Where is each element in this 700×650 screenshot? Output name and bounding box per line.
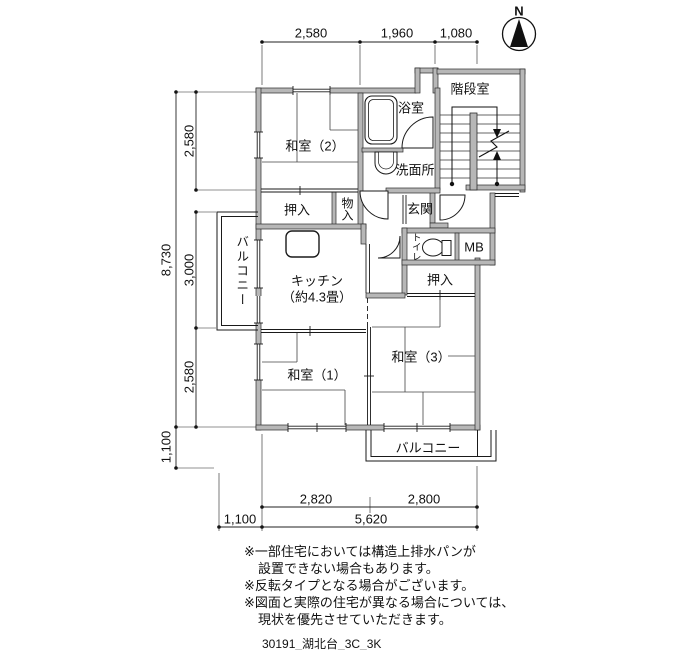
room-label-washitsu2: 和室（2）	[285, 140, 344, 153]
room-label-kitchen: キッチン	[291, 275, 343, 288]
window-washitsu3-bottom	[384, 423, 450, 432]
fusuma-closet-washitsu3	[407, 290, 475, 300]
window-top	[293, 86, 330, 95]
dim-top-2: 1,960	[381, 27, 414, 40]
wall-stair-left	[435, 88, 440, 190]
window-washitsu1-left	[254, 344, 263, 380]
wall-stair-right	[520, 69, 525, 192]
dim-bottom-offset: 1,100	[224, 513, 257, 526]
note-line-4: ※図面と実際の住宅が異なる場合については、	[244, 596, 514, 609]
room-label-kitchen-size: （約4.3畳）	[282, 291, 352, 304]
wall-washitsu2-right	[358, 93, 363, 228]
window-kitchen-balcony-2	[254, 296, 263, 323]
wall-kitchen-stub	[361, 224, 366, 244]
dim-left-seg-2: 3,000	[183, 254, 196, 287]
note-line-1: ※一部住宅においては構造上排水パンが	[244, 545, 476, 558]
dim-bottom-total: 5,620	[355, 513, 388, 526]
stair-rail	[470, 113, 477, 190]
note-line-3: ※反転タイプとなる場合がございます。	[244, 579, 474, 592]
toilet-icon	[423, 239, 452, 256]
dim-left-total: 8,730	[160, 244, 173, 277]
room-label-entrance: 玄関	[407, 203, 433, 216]
fusuma-kitchen-washitsu1	[261, 326, 366, 336]
wall-closet-divider	[332, 192, 336, 226]
dim-top-1: 2,580	[295, 27, 328, 40]
kitchen-door	[378, 236, 400, 258]
dim-bottom-2: 2,800	[408, 493, 441, 506]
window-washitsu1-bottom	[288, 423, 346, 432]
window-kitchen-balcony-1	[254, 240, 263, 288]
dim-top-3: 1,080	[440, 27, 473, 40]
stairs	[440, 107, 520, 190]
room-label-closet-right: 押入	[427, 274, 453, 287]
room-label-balcony-left: バルコニー	[235, 235, 248, 308]
wall-stair-top	[437, 69, 525, 74]
fusuma-washitsu2-closet	[261, 186, 358, 195]
room-label-washroom: 洗面所	[395, 164, 434, 177]
room-label-balcony-bottom: バルコニー	[396, 442, 461, 455]
north-label: N	[514, 5, 523, 18]
plan-id-footer: 30191_湖北台_3C_3K	[262, 638, 381, 650]
room-label-meter-box: MB	[464, 241, 484, 254]
wall-porch	[430, 223, 448, 228]
entrance-door	[440, 195, 465, 220]
stair-path-arrows	[450, 107, 509, 186]
room-label-storage: 物入	[341, 197, 353, 221]
window-washitsu2-left	[254, 132, 263, 158]
room-label-washitsu1: 和室（1）	[287, 369, 346, 382]
bath-door	[402, 117, 433, 148]
porch-edge-line	[495, 194, 519, 197]
dim-left-offset: 1,100	[160, 431, 173, 464]
north-arrow	[503, 18, 536, 51]
room-label-washitsu3: 和室（3）	[391, 351, 450, 364]
washroom-door	[360, 191, 388, 219]
wall-bath-divider	[362, 148, 403, 152]
fusuma-kitchen-east	[366, 244, 370, 293]
wall-toilet-mb-divider	[455, 233, 459, 261]
floor-plan-page: N 2,580 1,960 1,080 8,730 2,580 3,000 2,…	[0, 0, 700, 650]
stair-break-symbol	[479, 131, 509, 157]
room-label-closet-top: 押入	[284, 204, 310, 217]
wall-washroom-hall	[386, 188, 440, 193]
note-line-2: 設置できない場合もあります。	[258, 562, 439, 575]
room-label-bath: 浴室	[398, 102, 424, 115]
wall-kitchen-top	[256, 224, 366, 229]
wall-shaft-left	[415, 68, 420, 93]
fusuma-washitsu1-washitsu3	[364, 327, 374, 425]
kitchen-sink-icon	[286, 231, 319, 257]
dim-left-seg-1: 2,580	[183, 125, 196, 158]
wall-top	[256, 88, 416, 93]
dim-left-seg-3: 2,580	[183, 361, 196, 394]
compass-needle-icon	[510, 19, 528, 47]
dim-bottom-1: 2,820	[300, 493, 333, 506]
room-label-stairwell: 階段室	[450, 83, 489, 96]
wall-right-lower	[475, 258, 480, 430]
room-label-toilet: トイレ	[410, 233, 420, 262]
entrance-step-line	[403, 195, 406, 224]
wall-washitsu3-arm	[366, 293, 405, 298]
note-line-5: 現状を優先させていただきます。	[258, 613, 452, 626]
